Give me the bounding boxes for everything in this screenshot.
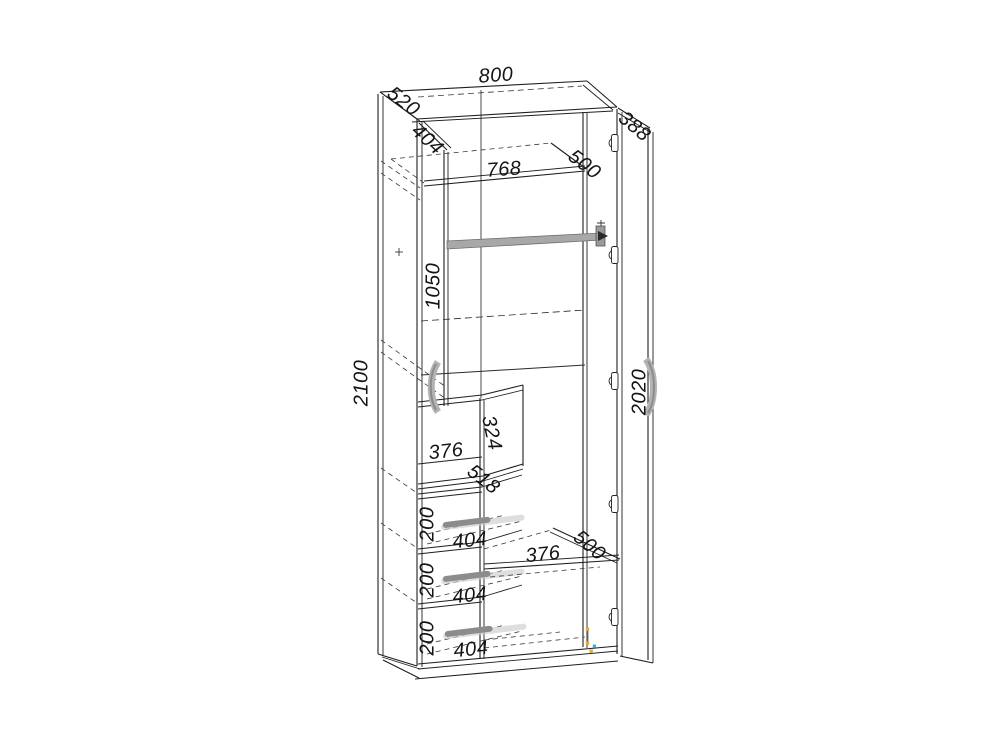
- grip-orange: [586, 628, 589, 631]
- dim-drawer1-width: 404: [451, 528, 488, 555]
- dim-top-shelf-width: 768: [486, 157, 522, 182]
- dim-total-height: 2100: [351, 360, 374, 407]
- dim-drawer1-height: 200: [417, 507, 440, 542]
- grip-orange: [590, 650, 593, 653]
- dim-upper-section-height: 1050: [423, 263, 446, 310]
- dim-top-width: 800: [478, 63, 514, 88]
- dim-door-height: 2020: [629, 369, 652, 416]
- wardrobe-drawing-canvas: 800 520 404 768 500 388 1050 2100 2020 3…: [0, 0, 1000, 752]
- dim-niche-width: 376: [427, 439, 464, 466]
- grip-cyan: [593, 645, 596, 648]
- wardrobe-line-drawing: [0, 0, 1000, 752]
- dim-lower-shelf-width: 376: [524, 542, 561, 569]
- grip-orange: [586, 642, 589, 645]
- dim-drawer3-width: 404: [452, 637, 489, 664]
- dim-drawer3-height: 200: [417, 621, 440, 656]
- paper-background: [0, 0, 1000, 752]
- dim-drawer2-height: 200: [417, 563, 440, 598]
- dim-drawer2-width: 404: [451, 583, 488, 610]
